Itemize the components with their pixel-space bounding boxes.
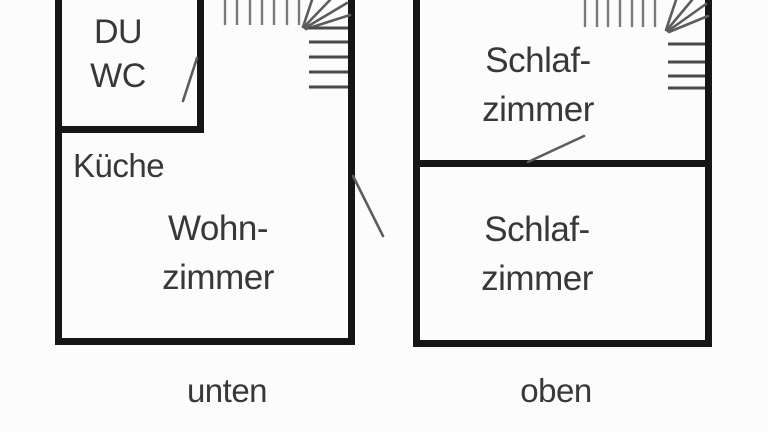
room-label-wohnzimmer: Wohn- zimmer [162, 204, 274, 302]
staircase-lower-upper-treads [225, 0, 299, 25]
floorplan-image: DU WC Küche Wohn- zimmer Schlaf- zimmer … [0, 0, 768, 432]
caption-lower-floor: unten [187, 369, 267, 413]
room-label-du-wc: DU WC [90, 10, 146, 98]
staircase-upper-side-treads [668, 44, 705, 88]
staircase-upper-upper-treads [585, 0, 655, 27]
room-label-schlafzimmer-1: Schlaf- zimmer [482, 36, 594, 134]
staircase-lower-winder-fan [303, 0, 350, 29]
door-entrance [353, 176, 383, 236]
door-du-wc [183, 58, 197, 101]
staircase-lower-side-treads [309, 28, 348, 87]
room-label-kueche: Küche [73, 144, 164, 188]
staircase-lower [225, 0, 350, 87]
caption-upper-floor: oben [520, 369, 591, 413]
door-upper-bedroom [528, 136, 584, 162]
staircase-upper-winder-fan [666, 0, 708, 32]
staircase-upper [585, 0, 708, 88]
room-label-schlafzimmer-2: Schlaf- zimmer [481, 205, 593, 303]
